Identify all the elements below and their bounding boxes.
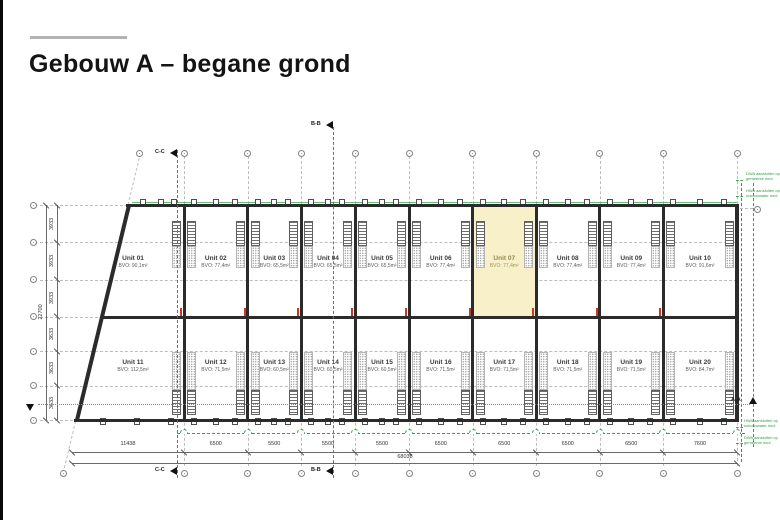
grid-bubble-top	[298, 150, 305, 157]
dimension-label: 6500	[617, 441, 645, 447]
stairs-symbol	[476, 390, 485, 415]
dimension-label: 6500	[490, 441, 518, 447]
utility-annotation: HWA aansluiten op schoonwater riool	[744, 419, 780, 429]
party-wall	[662, 205, 665, 420]
grid-row-line	[40, 386, 737, 387]
outer-wall-right	[735, 204, 740, 422]
section-line-bb	[333, 127, 334, 478]
stairs-symbol	[524, 221, 533, 246]
grid-bubble-bottom	[469, 470, 476, 477]
unit-cell-20[interactable]: Unit 20BVO: 84,7m²	[668, 359, 732, 373]
dimension-label-row: 3633	[49, 397, 55, 409]
grid-bubble-bottom	[181, 470, 188, 477]
grid-bubble-bottom	[734, 470, 741, 477]
stairs-symbol	[251, 221, 260, 246]
outer-wall-top	[126, 204, 739, 208]
unit-bvo: BVO: 77,4m²	[409, 263, 473, 269]
stairs-symbol	[651, 390, 660, 415]
annotation-leader	[736, 443, 743, 444]
stairs-symbol	[304, 390, 313, 415]
stairs-symbol	[236, 390, 245, 415]
dimension-label: 6500	[427, 441, 455, 447]
unit-cell-09[interactable]: Unit 09BVO: 77,4m²	[599, 255, 663, 269]
section-flag-cc-top	[170, 149, 177, 157]
grid-bubble-left	[30, 382, 37, 389]
utility-line-right-red	[741, 183, 742, 462]
unit-bvo: BVO: 71,5m²	[409, 367, 473, 373]
grid-bubble-top	[181, 150, 188, 157]
stairs-symbol	[588, 221, 597, 246]
stairs-symbol	[539, 390, 548, 415]
dimension-label: 11438	[114, 441, 142, 447]
stairs-symbol	[476, 221, 485, 246]
party-wall	[183, 205, 186, 420]
stairs-symbol	[666, 390, 675, 415]
stairs-symbol	[524, 390, 533, 415]
unit-name: Unit 09	[599, 255, 663, 263]
grid-bubble-top	[533, 150, 540, 157]
grid-bubble-top	[406, 150, 413, 157]
grid-bubble-left	[30, 417, 37, 424]
grid-row-line	[40, 280, 737, 281]
stairs-symbol	[358, 390, 367, 415]
unit-name: Unit 05	[350, 255, 414, 263]
stairs-symbol	[397, 221, 406, 246]
unit-bvo: BVO: 77,4m²	[599, 263, 663, 269]
unit-bvo: BVO: 77,4m²	[536, 263, 600, 269]
section-label-aa: A-A	[731, 397, 741, 403]
grid-bubble-right	[754, 206, 761, 213]
unit-name: Unit 01	[101, 255, 165, 263]
stairs-symbol	[603, 390, 612, 415]
utility-annotation: HWA aansluiten op schoonwater riool	[746, 189, 780, 199]
unit-name: Unit 06	[409, 255, 473, 263]
grid-bubble-bottom	[60, 470, 67, 477]
drain-arc	[244, 429, 252, 434]
grid-bubble-top	[734, 150, 741, 157]
stairs-symbol	[603, 221, 612, 246]
stairs-symbol	[343, 390, 352, 415]
stairs-symbol	[343, 221, 352, 246]
party-wall-middle	[100, 316, 737, 319]
fire-separation-mark	[659, 308, 661, 316]
grid-row-line	[40, 351, 737, 352]
stairs-symbol	[358, 221, 367, 246]
drain-arc	[596, 429, 604, 434]
party-wall	[408, 205, 411, 420]
stairs-symbol	[187, 390, 196, 415]
party-wall	[471, 205, 474, 420]
grid-bubble-top	[352, 150, 359, 157]
drain-arc	[405, 429, 413, 434]
party-wall	[300, 205, 303, 420]
unit-cell-16[interactable]: Unit 16BVO: 71,5m²	[409, 359, 473, 373]
unit-bvo: BVO: 71,5m²	[184, 367, 248, 373]
party-wall	[535, 205, 538, 420]
grid-bubble-left	[30, 202, 37, 209]
drain-arc	[180, 429, 188, 434]
section-line-cc	[177, 150, 178, 478]
unit-bvo: BVO: 71,5m²	[536, 367, 600, 373]
unit-cell-17[interactable]: Unit 17BVO: 71,5m²	[472, 359, 536, 373]
unit-cell-12[interactable]: Unit 12BVO: 71,5m²	[184, 359, 248, 373]
unit-cell-05[interactable]: Unit 05BVO: 65,5m²	[350, 255, 414, 269]
fire-separation-mark	[469, 308, 471, 316]
utility-annotation: DWA aansluiten op gemeente riool	[744, 436, 780, 446]
dimension-label: 6500	[202, 441, 230, 447]
section-flag-bb-bottom	[326, 467, 333, 475]
stairs-symbol	[588, 390, 597, 415]
unit-cell-07[interactable]: Unit 07BVO: 77,4m²	[472, 255, 536, 269]
fire-separation-mark	[351, 308, 353, 316]
stairs-symbol	[412, 221, 421, 246]
fire-separation-mark	[244, 308, 246, 316]
unit-cell-08[interactable]: Unit 08BVO: 77,4m²	[536, 255, 600, 269]
grid-bubble-bottom	[244, 470, 251, 477]
unit-name: Unit 17	[472, 359, 536, 367]
stairs-symbol	[187, 221, 196, 246]
unit-cell-11[interactable]: Unit 11BVO: 112,5m²	[101, 359, 165, 373]
dimension-label: 5500	[368, 441, 396, 447]
section-line-aa	[38, 404, 750, 405]
stairs-symbol	[251, 390, 260, 415]
grid-bubble-left	[30, 239, 37, 246]
grid-bubble-top	[596, 150, 603, 157]
stairs-symbol	[461, 390, 470, 415]
unit-bvo: BVO: 71,5m²	[472, 367, 536, 373]
stairs-symbol	[289, 390, 298, 415]
unit-name: Unit 07	[472, 255, 536, 263]
dimension-line-total	[72, 463, 737, 464]
dimension-line-height-total	[46, 205, 47, 420]
dimension-label: 5500	[314, 441, 342, 447]
unit-cell-06[interactable]: Unit 06BVO: 77,4m²	[409, 255, 473, 269]
unit-name: Unit 20	[668, 359, 732, 367]
section-label-bb: B-B	[311, 467, 321, 473]
unit-bvo: BVO: 90,1m²	[101, 263, 165, 269]
dimension-label-row: 3933	[49, 218, 55, 230]
drain-arc	[469, 429, 477, 434]
unit-cell-18[interactable]: Unit 18BVO: 71,5m²	[536, 359, 600, 373]
dimension-label-row: 3633	[49, 362, 55, 374]
section-label-cc: C-C	[155, 149, 165, 155]
stairs-symbol	[412, 390, 421, 415]
dimension-label-row: 3933	[49, 292, 55, 304]
unit-name: Unit 08	[536, 255, 600, 263]
grid-bubble-bottom	[352, 470, 359, 477]
utility-annotation: DWA aansluiten op gemeente riool	[746, 172, 780, 182]
dimension-label: 7600	[686, 441, 714, 447]
section-label-bb: B-B	[311, 121, 321, 127]
fire-separation-mark	[596, 308, 598, 316]
stairs-symbol	[289, 221, 298, 246]
bubble-leader	[740, 208, 753, 209]
stairs-symbol	[461, 221, 470, 246]
unit-cell-02[interactable]: Unit 02BVO: 77,4m²	[184, 255, 248, 269]
annotation-leader	[736, 427, 743, 428]
dimension-label-height-total: 22700	[38, 304, 44, 319]
party-wall	[354, 205, 357, 420]
grid-bubble-bottom	[298, 470, 305, 477]
stairs-symbol	[236, 221, 245, 246]
dimension-label-row: 3633	[49, 328, 55, 340]
section-flag-aa-right	[749, 397, 757, 404]
unit-name: Unit 10	[668, 255, 732, 263]
grid-row-line	[40, 242, 737, 243]
unit-name: Unit 12	[184, 359, 248, 367]
drain-arc	[351, 429, 359, 434]
grid-bubble-top	[469, 150, 476, 157]
unit-bvo: BVO: 77,4m²	[472, 263, 536, 269]
section-flag-aa-left	[26, 404, 34, 411]
dimension-line-columns	[72, 452, 737, 453]
unit-name: Unit 19	[599, 359, 663, 367]
unit-bvo: BVO: 112,5m²	[101, 367, 165, 373]
section-flag-cc-bottom	[170, 467, 177, 475]
unit-name: Unit 11	[101, 359, 165, 367]
dimension-label: 5500	[260, 441, 288, 447]
stairs-symbol	[651, 221, 660, 246]
fire-separation-mark	[405, 308, 407, 316]
dimension-label-total: 68038	[389, 454, 421, 460]
stairs-symbol	[725, 221, 734, 246]
grid-bubble-top	[660, 150, 667, 157]
grid-bubble-bottom	[660, 470, 667, 477]
unit-bvo: BVO: 77,4m²	[184, 263, 248, 269]
grid-bubble-bottom	[533, 470, 540, 477]
drain-arc	[659, 429, 667, 434]
floorplan-page: Gebouw A – begane grond Unit 01BVO: 90,1…	[0, 0, 780, 520]
grid-bubble-top	[244, 150, 251, 157]
unit-bvo: BVO: 65,5m²	[350, 263, 414, 269]
drain-arc	[297, 429, 305, 434]
unit-name: Unit 18	[536, 359, 600, 367]
section-label-cc: C-C	[155, 467, 165, 473]
stairs-symbol	[539, 221, 548, 246]
unit-name: Unit 15	[350, 359, 414, 367]
grid-bubble-bottom	[406, 470, 413, 477]
drain-arc	[733, 429, 741, 434]
party-wall	[246, 205, 249, 420]
stairs-symbol	[304, 221, 313, 246]
annotation-leader	[736, 196, 743, 197]
unit-bvo: BVO: 84,7m²	[668, 367, 732, 373]
unit-name: Unit 16	[409, 359, 473, 367]
section-flag-bb-top	[326, 121, 333, 129]
dimension-label: 6500	[554, 441, 582, 447]
unit-cell-15[interactable]: Unit 15BVO: 60,5m²	[350, 359, 414, 373]
dimension-label-row: 3933	[49, 255, 55, 267]
grid-bubble-left	[30, 276, 37, 283]
drain-arc	[532, 429, 540, 434]
grid-bubble-top	[136, 150, 143, 157]
fire-separation-mark	[180, 308, 182, 316]
unit-bvo: BVO: 71,5m²	[599, 367, 663, 373]
unit-cell-10[interactable]: Unit 10BVO: 91,6m²	[668, 255, 732, 269]
floorplan-drawing: Unit 01BVO: 90,1m²Unit 02BVO: 77,4m²Unit…	[0, 0, 780, 520]
annotation-leader	[736, 180, 743, 181]
unit-cell-19[interactable]: Unit 19BVO: 71,5m²	[599, 359, 663, 373]
fire-separation-mark	[297, 308, 299, 316]
unit-bvo: BVO: 91,6m²	[668, 263, 732, 269]
stairs-symbol	[666, 221, 675, 246]
grid-bubble-left	[30, 348, 37, 355]
unit-bvo: BVO: 60,5m²	[350, 367, 414, 373]
grid-bubble-left	[30, 313, 37, 320]
outer-wall-bottom	[74, 419, 739, 423]
stairs-symbol	[397, 390, 406, 415]
party-wall	[598, 205, 601, 420]
unit-name: Unit 02	[184, 255, 248, 263]
outer-wall-slanted	[75, 205, 131, 421]
utility-line-right-green	[753, 183, 754, 447]
grid-bubble-bottom	[596, 470, 603, 477]
fire-separation-mark	[532, 308, 534, 316]
unit-cell-01[interactable]: Unit 01BVO: 90,1m²	[101, 255, 165, 269]
